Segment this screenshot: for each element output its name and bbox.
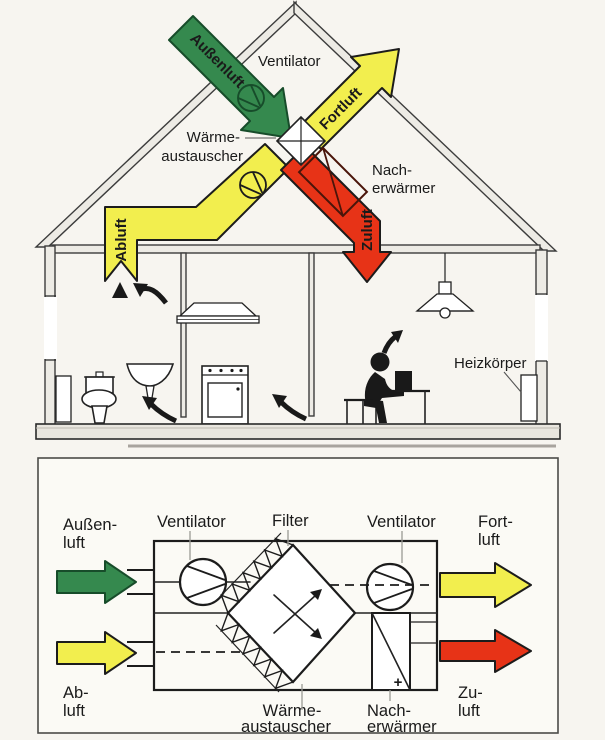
laptop (395, 371, 412, 390)
floor-slab (36, 424, 560, 439)
bath-cabinet (56, 376, 71, 422)
person-head (371, 353, 390, 372)
heizkoerper-label: Heizkörper (454, 355, 527, 372)
filter-label: Filter (272, 512, 309, 530)
window-right (535, 295, 548, 361)
zuluft-label-line1: Zu- (458, 684, 483, 702)
abluft-label-line2: luft (63, 702, 85, 720)
scanned-diagram-page: Außenluft Fortluft Abluft Zuluft (0, 0, 605, 740)
unit-diagram: + (38, 458, 558, 736)
aussenluft-label-line1: Außen- (63, 516, 117, 534)
plus-sign: + (394, 674, 403, 691)
ventilator-right-label: Ventilator (367, 513, 436, 531)
up-arrow (112, 282, 128, 298)
ventilator-left-label: Ventilator (157, 513, 226, 531)
fortluft-label-line2: luft (478, 531, 500, 549)
waermeaustauscher-label-line2: austauscher (161, 148, 243, 165)
abluft-label-line1: Ab- (63, 684, 89, 702)
waermeaustauscher-label-line2: austauscher (241, 718, 331, 736)
room-fixtures (56, 253, 537, 424)
waermeaustauscher-label-line1: Wärme- (187, 129, 240, 146)
cooker-hood (180, 303, 256, 316)
fan-icon (367, 564, 413, 610)
ventilator-label: Ventilator (258, 53, 321, 70)
stove-handle (236, 387, 239, 390)
nacherwaermer-label-line2: erwärmer (372, 180, 435, 197)
house-diagram: Außenluft Fortluft Abluft Zuluft (36, 2, 560, 446)
zuluft-label-line2: luft (458, 702, 480, 720)
window-left (44, 297, 57, 359)
partition-kitchen-study (309, 253, 314, 416)
lamp-bulb (440, 308, 450, 318)
radiator (521, 375, 537, 421)
sink (127, 364, 173, 386)
nacherwaermer-label-line1: Nach- (372, 162, 412, 179)
sink-drain (146, 386, 154, 398)
fortluft-label-line1: Fort- (478, 513, 513, 531)
toilet-base (92, 406, 107, 423)
abluft-label: Abluft (113, 218, 130, 261)
aussenluft-label-line2: luft (63, 534, 85, 552)
lamp-mount (439, 282, 451, 294)
nacherwaermer-label-line2: erwärmer (367, 718, 437, 736)
zuluft-label: Zuluft (359, 209, 376, 251)
partition-bath-kitchen (181, 253, 186, 417)
